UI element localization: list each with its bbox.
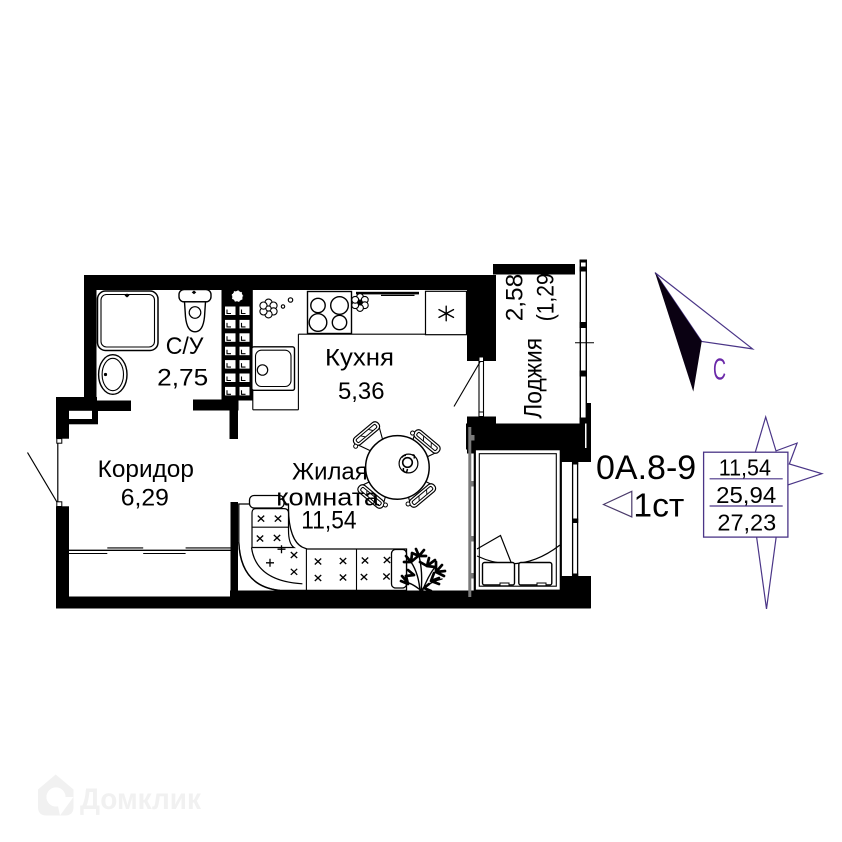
svg-text:1ст: 1ст: [633, 487, 684, 524]
svg-text:11,54: 11,54: [719, 455, 771, 481]
svg-text:С: С: [713, 352, 726, 387]
svg-text:25,94: 25,94: [716, 482, 776, 508]
svg-text:2,75: 2,75: [157, 365, 208, 392]
svg-text:2,58: 2,58: [502, 274, 529, 322]
svg-text:6,29: 6,29: [121, 485, 169, 512]
svg-text:Лоджия: Лоджия: [520, 338, 548, 419]
svg-text:Домклик: Домклик: [80, 783, 202, 816]
svg-text:5,36: 5,36: [338, 378, 385, 405]
svg-text:Коридор: Коридор: [98, 456, 194, 483]
svg-text:Кухня: Кухня: [325, 345, 394, 372]
svg-text:0А.8-9: 0А.8-9: [596, 449, 696, 487]
svg-text:С/У: С/У: [166, 333, 205, 360]
svg-text:Жилая: Жилая: [292, 458, 368, 485]
svg-text:11,54: 11,54: [301, 507, 356, 535]
svg-text:(1,29: (1,29: [533, 273, 560, 321]
svg-text:27,23: 27,23: [717, 510, 776, 536]
